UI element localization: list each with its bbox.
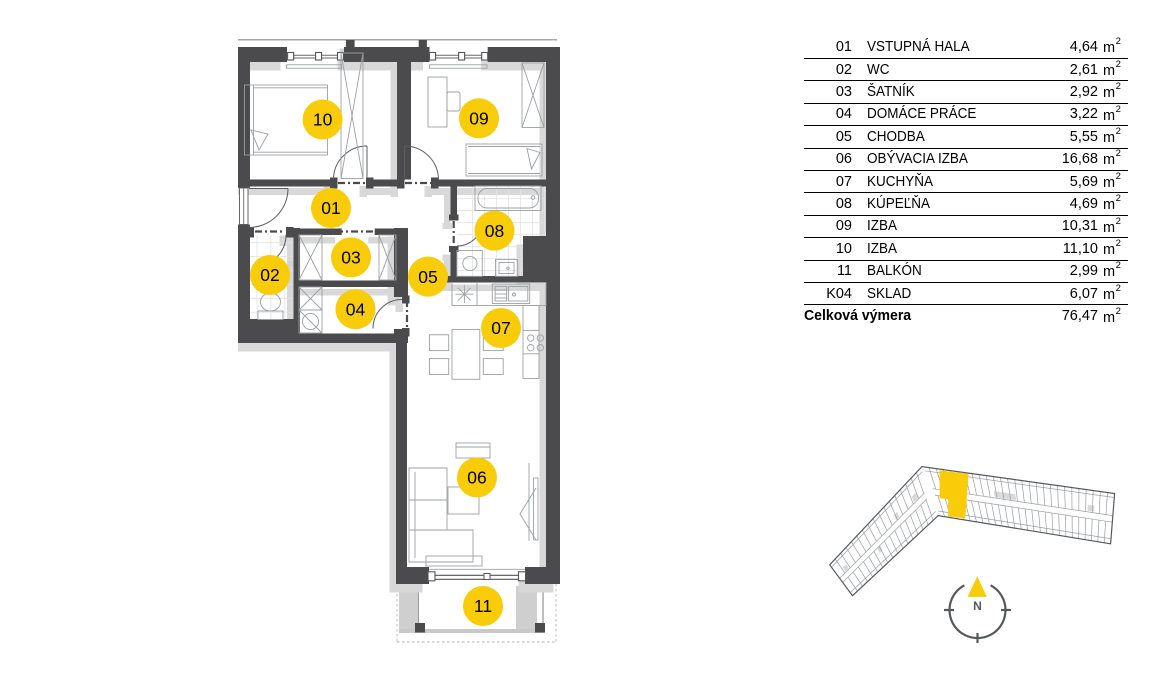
svg-text:N: N bbox=[973, 599, 982, 613]
svg-text:08: 08 bbox=[485, 221, 504, 241]
svg-text:10: 10 bbox=[313, 110, 333, 130]
svg-text:01: 01 bbox=[321, 198, 340, 218]
svg-text:05: 05 bbox=[418, 267, 437, 287]
svg-text:02: 02 bbox=[260, 265, 279, 285]
svg-text:09: 09 bbox=[469, 109, 488, 129]
svg-text:11: 11 bbox=[474, 596, 492, 616]
svg-text:06: 06 bbox=[467, 468, 486, 488]
svg-text:03: 03 bbox=[341, 248, 360, 268]
svg-text:07: 07 bbox=[491, 318, 510, 338]
svg-text:04: 04 bbox=[346, 299, 366, 319]
